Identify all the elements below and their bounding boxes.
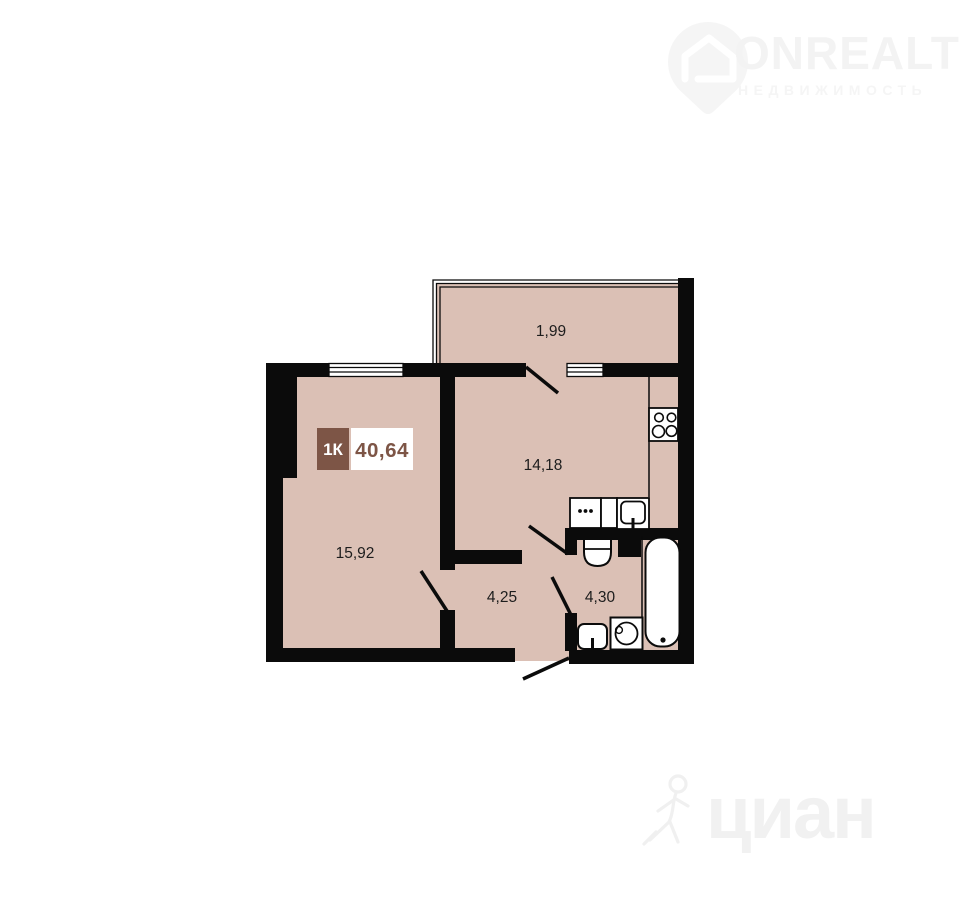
duct-shaft	[618, 528, 641, 557]
door-entrance	[523, 658, 569, 679]
wall-bathroom-left-upper	[565, 528, 577, 555]
apartment-badge: 1К 40,64	[317, 428, 413, 470]
walking-person-icon	[638, 772, 704, 867]
toilet-icon	[584, 540, 611, 566]
room-area-label-living: 15,92	[336, 545, 375, 562]
bathtub-icon	[642, 536, 680, 649]
wall-left-pilaster	[266, 363, 297, 478]
stove-icon	[649, 408, 678, 441]
apartment-area-text: 40,64	[355, 439, 409, 462]
room-area-label-hallway: 4,25	[487, 589, 517, 606]
apartment-type-text: 1К	[323, 440, 343, 459]
page: ONREALT НЕДВИЖИМОСТЬ	[0, 0, 960, 910]
window-kitchen-balcony	[567, 364, 603, 377]
counter-dots-icon	[570, 498, 601, 528]
washing-machine-icon	[611, 618, 643, 650]
wall-living-hallway-stub	[440, 610, 455, 648]
entrance-threshold-floor	[515, 648, 569, 661]
room-area-label-kitchen: 14,18	[524, 457, 563, 474]
floor-fills	[270, 283, 685, 661]
wall-bottom	[266, 648, 515, 662]
wall-living-kitchen	[440, 377, 455, 570]
washbasin-icon	[578, 624, 607, 654]
window-living-room	[329, 364, 403, 377]
kitchen-sink-icon	[617, 498, 649, 530]
wall-kitchen-hallway	[452, 550, 522, 564]
cian-watermark: циан	[638, 772, 875, 867]
wall-bottom-bathroom	[569, 650, 694, 664]
room-area-label-balcony: 1,99	[536, 323, 566, 340]
wall-bathroom-left-lower	[565, 613, 577, 651]
counter-segment	[601, 498, 617, 528]
cian-brand-text: циан	[706, 776, 875, 850]
room-area-label-bathroom: 4,30	[585, 589, 616, 606]
